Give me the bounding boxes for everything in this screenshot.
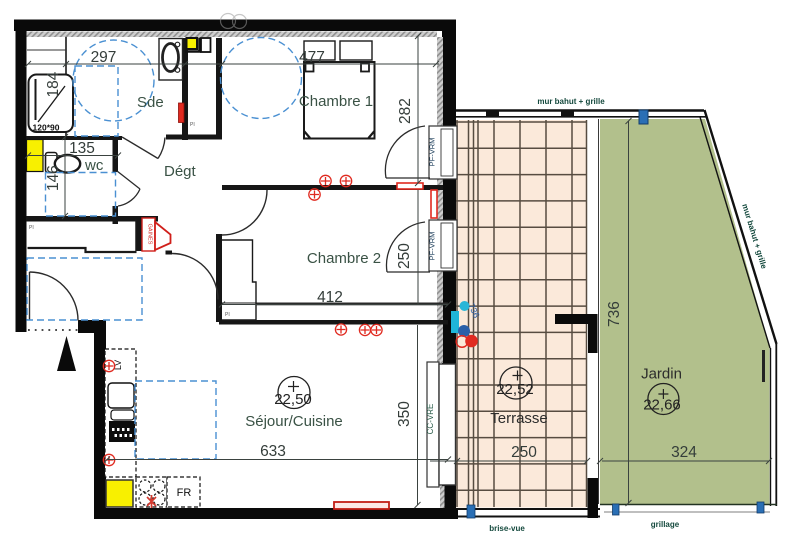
svg-text:350: 350 <box>396 401 413 427</box>
svg-text:brise-vue: brise-vue <box>489 524 525 533</box>
svg-text:wc: wc <box>84 157 104 174</box>
svg-text:250: 250 <box>396 243 413 269</box>
svg-text:grillage: grillage <box>651 520 680 529</box>
svg-text:PF-VRM: PF-VRM <box>428 138 437 167</box>
svg-text:Dégt: Dégt <box>164 163 197 180</box>
svg-text:Séjour/Cuisine: Séjour/Cuisine <box>245 413 343 430</box>
svg-text:Terrasse: Terrasse <box>490 410 548 427</box>
svg-text:PI: PI <box>190 122 195 128</box>
svg-text:PF-VRM: PF-VRM <box>428 232 437 261</box>
svg-text:Jardin: Jardin <box>641 366 682 383</box>
svg-text:FR: FR <box>177 487 192 499</box>
svg-text:282: 282 <box>397 98 414 124</box>
svg-text:135: 135 <box>69 140 95 157</box>
svg-text:Chambre 2: Chambre 2 <box>307 250 381 267</box>
svg-text:mur bahut + grille: mur bahut + grille <box>537 97 605 106</box>
svg-text:146: 146 <box>45 165 62 191</box>
svg-text:22,66: 22,66 <box>643 397 681 414</box>
svg-text:120*90: 120*90 <box>33 123 60 133</box>
svg-text:22,52: 22,52 <box>496 381 534 398</box>
svg-text:PI: PI <box>225 312 230 318</box>
svg-text:412: 412 <box>317 289 343 306</box>
svg-text:250: 250 <box>511 444 537 461</box>
svg-text:Sde: Sde <box>137 94 164 111</box>
svg-text:184: 184 <box>45 71 62 97</box>
svg-text:GAINES: GAINES <box>147 224 153 245</box>
svg-text:22,50: 22,50 <box>274 391 312 408</box>
svg-text:324: 324 <box>671 444 697 461</box>
svg-text:736: 736 <box>606 301 623 327</box>
svg-text:PI: PI <box>29 225 34 231</box>
svg-text:297: 297 <box>91 49 117 66</box>
svg-text:CC-VRE: CC-VRE <box>426 404 435 435</box>
svg-text:633: 633 <box>260 443 286 460</box>
svg-text:Chambre 1: Chambre 1 <box>299 93 373 110</box>
svg-text:477: 477 <box>299 49 325 66</box>
